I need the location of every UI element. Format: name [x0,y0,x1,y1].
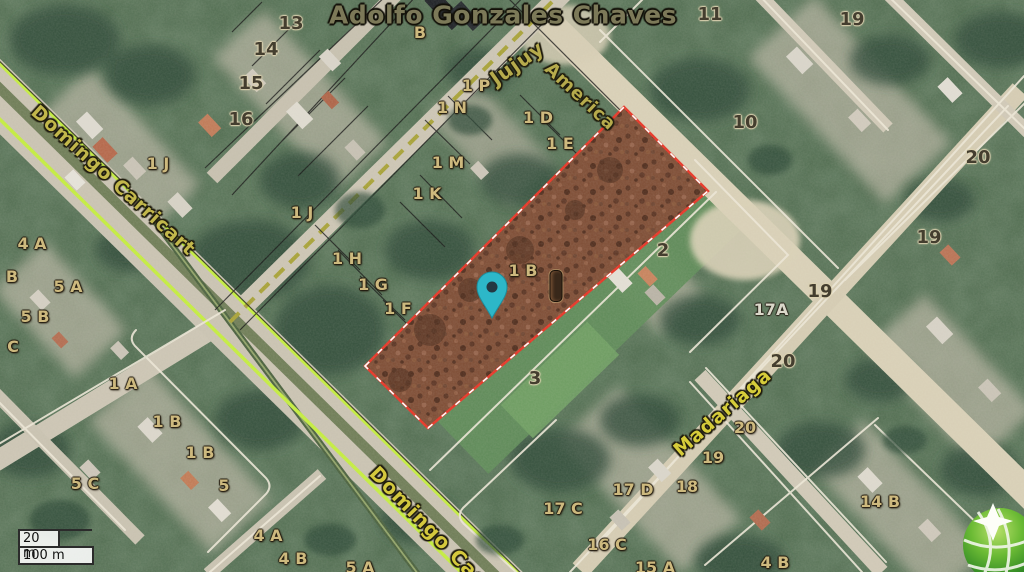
scale-extension-line [59,529,92,531]
map-viewport[interactable]: JujuyAmericaDomingo CarricartDomingo Car… [0,0,1024,572]
noise-overlay [0,0,1024,572]
scale-control: 20 m 100 m [18,529,94,565]
town-title: Adolfo Gonzales Chaves [329,1,677,30]
scale-small-label: 20 m [18,529,60,548]
satellite-basemap [0,0,1024,572]
